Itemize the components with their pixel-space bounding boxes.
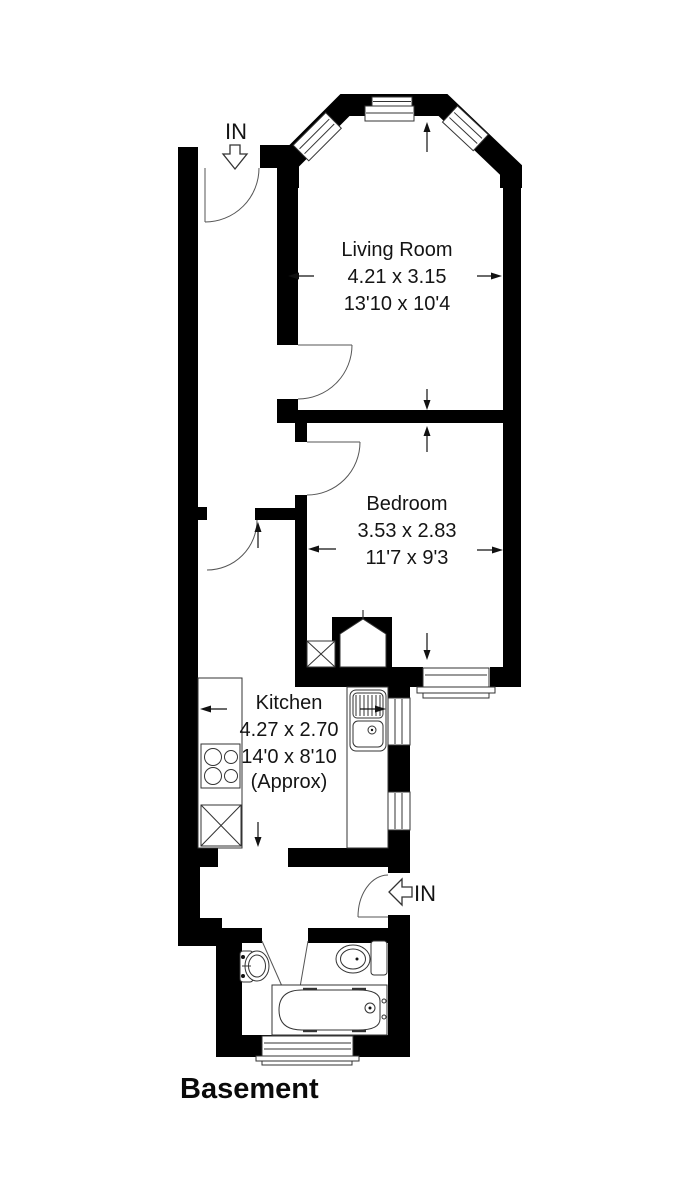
lower-left-wall: [178, 867, 200, 923]
bathroom-window: [256, 1036, 359, 1065]
entrance-door-top: [205, 168, 259, 222]
hall-kitchen-wall: [255, 508, 307, 520]
living-bedroom-wall: [277, 410, 521, 423]
bathroom-fixtures: [240, 941, 387, 1035]
kitchen-note: (Approx): [251, 771, 328, 793]
bedroom-metric: 3.53 x 2.83: [358, 520, 457, 542]
floor-plan-drawing: Living Room 4.21 x 3.15 13'10 x 10'4 Bed…: [0, 0, 686, 1200]
entrance-door-side: [358, 875, 388, 917]
bedroom-window: [417, 668, 495, 698]
living-room-door: [298, 345, 352, 399]
lower-left-corner: [178, 918, 222, 946]
appliance-box-kitchen: [201, 805, 241, 846]
right-outer-wall: [503, 170, 521, 687]
hall-top-wall: [260, 145, 298, 168]
bedroom-imperial: 11'7 x 9'3: [366, 547, 449, 569]
kitchen-sink: [350, 690, 386, 751]
kitchen-window-2: [388, 792, 410, 830]
kitchen-window-1: [388, 698, 410, 745]
hob: [201, 744, 240, 788]
appliance-box-bedroom: [307, 641, 335, 667]
living-room-metric: 4.21 x 3.15: [348, 266, 447, 288]
toilet: [336, 941, 387, 975]
entrance-label-top: IN: [225, 119, 247, 144]
bedroom-left-wall: [295, 495, 307, 667]
entrance-jamb-wall: [388, 915, 410, 937]
entrance-label-side: IN: [414, 881, 436, 906]
bedroom-name: Bedroom: [366, 493, 447, 515]
bedroom-bottom-wall-right: [490, 667, 521, 687]
kitchen-imperial: 14'0 x 8'10: [241, 746, 337, 768]
kitchen-bottom-wall: [288, 848, 388, 867]
living-left-wall: [277, 167, 298, 345]
left-outer-wall: [178, 147, 198, 867]
bathtub: [272, 985, 387, 1035]
bedroom-left-stub: [295, 423, 307, 442]
entrance-arrow-down-icon: [223, 145, 247, 169]
plan-title: Basement: [180, 1073, 319, 1105]
wash-basin: [240, 951, 269, 982]
kitchen-metric: 4.27 x 2.70: [240, 719, 339, 741]
kitchen-bottom-left-corner: [178, 848, 218, 867]
living-room-name: Living Room: [341, 239, 452, 261]
entrance-arrow-left-icon: [389, 879, 412, 905]
living-room-imperial: 13'10 x 10'4: [344, 293, 451, 315]
bedroom-bottom-wall: [295, 667, 423, 687]
hall-door-jamb: [198, 507, 207, 520]
bedroom-door: [307, 442, 360, 495]
floor-plan-page: Living Room 4.21 x 3.15 13'10 x 10'4 Bed…: [0, 0, 686, 1200]
hall-kitchen-door: [207, 520, 257, 570]
bathroom-top-wall-left: [216, 928, 262, 943]
kitchen-name: Kitchen: [256, 692, 323, 714]
